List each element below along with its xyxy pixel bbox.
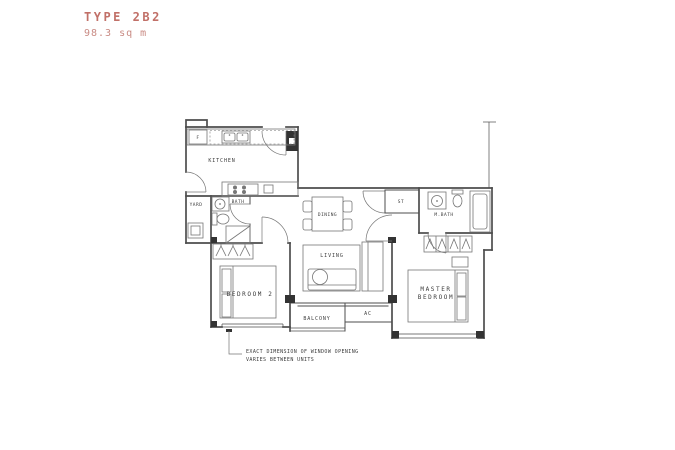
tv-console xyxy=(362,242,383,291)
washing-machine xyxy=(188,223,203,238)
annotation-line-2: VARIES BETWEEN UNITS xyxy=(246,357,314,363)
bath-label: BATH xyxy=(232,199,245,205)
pillow xyxy=(222,269,231,292)
master-bedroom-label-1: MASTER xyxy=(420,286,451,293)
pillow xyxy=(457,297,466,320)
windows xyxy=(222,324,478,338)
bath-toilet-bowl xyxy=(217,214,229,224)
balcony-label: BALCONY xyxy=(303,316,330,322)
entry-door-arc xyxy=(262,131,286,155)
dining-label: DINING xyxy=(318,212,337,218)
dining-chair xyxy=(303,201,312,212)
bath-toilet-tank xyxy=(212,213,217,225)
entry-area xyxy=(262,131,298,155)
living-area xyxy=(303,242,383,291)
yard-area xyxy=(188,223,203,238)
nightstand xyxy=(452,257,468,267)
mbath-toilet-tank xyxy=(452,190,463,194)
kitchen-area xyxy=(187,129,298,196)
yard-door-arc xyxy=(186,172,206,192)
dining-chair xyxy=(343,201,352,212)
floor-plan-svg: KITCHEN YARD BATH DINING LIVING ST M.BAT… xyxy=(0,0,675,450)
annotation-leader xyxy=(226,329,242,354)
master-bedroom-label-2: BEDROOM xyxy=(418,294,455,301)
fridge-label: F xyxy=(196,135,199,141)
pillow xyxy=(457,273,466,296)
bath-door-arc xyxy=(230,204,250,224)
ac-ledge-label: AC xyxy=(364,311,372,317)
sofa xyxy=(308,269,356,290)
living-label: LIVING xyxy=(320,253,343,259)
dining-chair xyxy=(343,219,352,230)
mbath-toilet-bowl xyxy=(453,195,462,207)
master-bath-label: M.BATH xyxy=(434,212,453,218)
store-door-arc xyxy=(363,191,385,213)
living-rug xyxy=(303,245,360,291)
coffee-table xyxy=(313,270,328,285)
walls xyxy=(186,120,496,338)
annotation-line-1: EXACT DIMENSION OF WINDOW OPENING xyxy=(246,349,359,355)
bedroom2-label: BEDROOM 2 xyxy=(227,291,274,298)
room-labels: KITCHEN YARD BATH DINING LIVING ST M.BAT… xyxy=(190,135,455,322)
store-label: ST xyxy=(398,199,404,205)
kitchen-label: KITCHEN xyxy=(208,158,235,164)
annotation-text: EXACT DIMENSION OF WINDOW OPENING VARIES… xyxy=(246,349,359,363)
floor-plan-page: TYPE 2B2 98.3 sq m xyxy=(0,0,675,450)
bedroom2-wardrobe xyxy=(213,244,253,259)
master-bath-area xyxy=(428,190,490,232)
yard-label: YARD xyxy=(190,202,203,208)
bedroom2-door-arc xyxy=(262,217,288,243)
dining-chair xyxy=(303,219,312,230)
